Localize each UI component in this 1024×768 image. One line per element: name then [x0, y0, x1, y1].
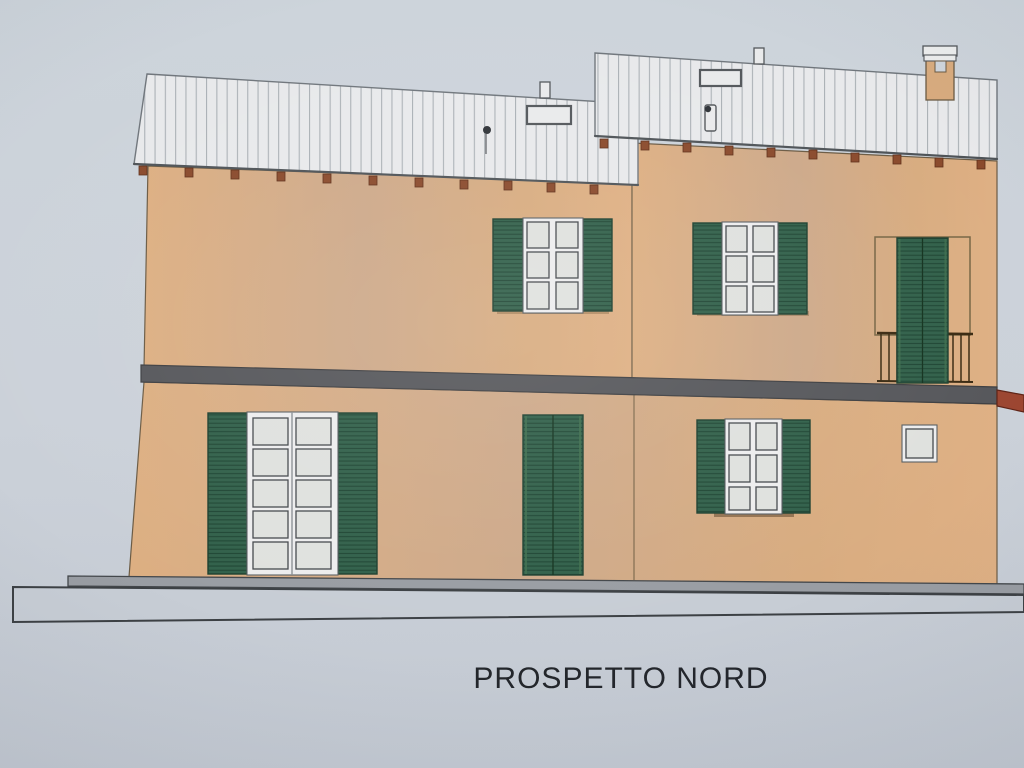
- rafter: [277, 172, 285, 181]
- closed-shutter-door-ground: [523, 415, 583, 575]
- rafter: [369, 176, 377, 185]
- rafter: [185, 168, 193, 177]
- door-pane: [253, 449, 288, 476]
- rafter: [323, 174, 331, 183]
- red-slab-section: [997, 390, 1024, 412]
- open-shutter-right: [778, 223, 807, 314]
- roof-stack-left: [540, 82, 550, 98]
- rafter: [767, 148, 775, 157]
- open-shutter-left: [493, 219, 523, 311]
- window-pane: [726, 256, 747, 282]
- skylight-right-roof: [700, 70, 741, 86]
- elevation-title: PROSPETTO NORD: [473, 662, 768, 695]
- small-square-window: [902, 425, 937, 462]
- window-pane: [729, 487, 750, 510]
- window-pane: [556, 282, 578, 309]
- chimney-cap-band: [924, 55, 956, 61]
- rafter: [139, 166, 147, 175]
- rafter: [935, 158, 943, 167]
- open-shutter-left: [697, 420, 725, 513]
- open-shutter-left: [208, 413, 247, 574]
- rafter: [851, 153, 859, 162]
- window-pane: [753, 256, 774, 282]
- ground-window-right: [697, 419, 810, 517]
- rafter: [504, 181, 512, 190]
- door-pane: [253, 542, 288, 569]
- door-pane: [296, 418, 331, 445]
- chimney: [923, 46, 957, 100]
- open-shutter-left: [693, 223, 722, 314]
- window-pane: [756, 487, 777, 510]
- window-pane: [753, 286, 774, 312]
- door-pane: [253, 418, 288, 445]
- rafter: [725, 146, 733, 155]
- rafter: [460, 180, 468, 189]
- rafter: [415, 178, 423, 187]
- vent-cap: [483, 126, 491, 134]
- window-pane: [729, 455, 750, 482]
- door-pane: [253, 511, 288, 538]
- window-pane: [756, 423, 777, 450]
- upper-window-left: [493, 218, 612, 314]
- open-shutter-right: [782, 420, 810, 513]
- chimney-flue-notch: [935, 61, 946, 72]
- window-pane: [729, 423, 750, 450]
- open-shutter-right: [338, 413, 377, 574]
- door-pane: [296, 480, 331, 507]
- window-pane: [756, 455, 777, 482]
- window-pane: [556, 222, 578, 248]
- door-pane: [296, 449, 331, 476]
- upper-window-right: [693, 222, 809, 316]
- window-pane: [906, 429, 933, 458]
- rafter: [641, 141, 649, 150]
- rafter: [590, 185, 598, 194]
- rafter: [683, 143, 691, 152]
- door-pane: [296, 511, 331, 538]
- photographed-drawing: PROSPETTO NORD: [0, 0, 1024, 768]
- window-pane: [527, 222, 549, 248]
- elevation-drawing: PROSPETTO NORD: [0, 0, 1024, 768]
- roof-stack-right: [754, 48, 764, 64]
- roof-vent-right: [705, 105, 716, 131]
- rafter: [600, 139, 608, 148]
- skylight-left-roof: [527, 106, 571, 124]
- window-pane: [726, 226, 747, 252]
- balcony-door-closed-shutters: [897, 238, 948, 383]
- french-door-ground-left: [208, 412, 377, 575]
- window-pane: [527, 252, 549, 278]
- rafter: [809, 150, 817, 159]
- rafter: [547, 183, 555, 192]
- rafter: [977, 160, 985, 169]
- door-pane: [253, 480, 288, 507]
- window-pane: [726, 286, 747, 312]
- window-pane: [556, 252, 578, 278]
- rafter: [893, 155, 901, 164]
- door-pane: [296, 542, 331, 569]
- open-shutter-right: [583, 219, 612, 311]
- rafter: [231, 170, 239, 179]
- vent-cap: [705, 106, 711, 112]
- window-pane: [527, 282, 549, 309]
- window-pane: [753, 226, 774, 252]
